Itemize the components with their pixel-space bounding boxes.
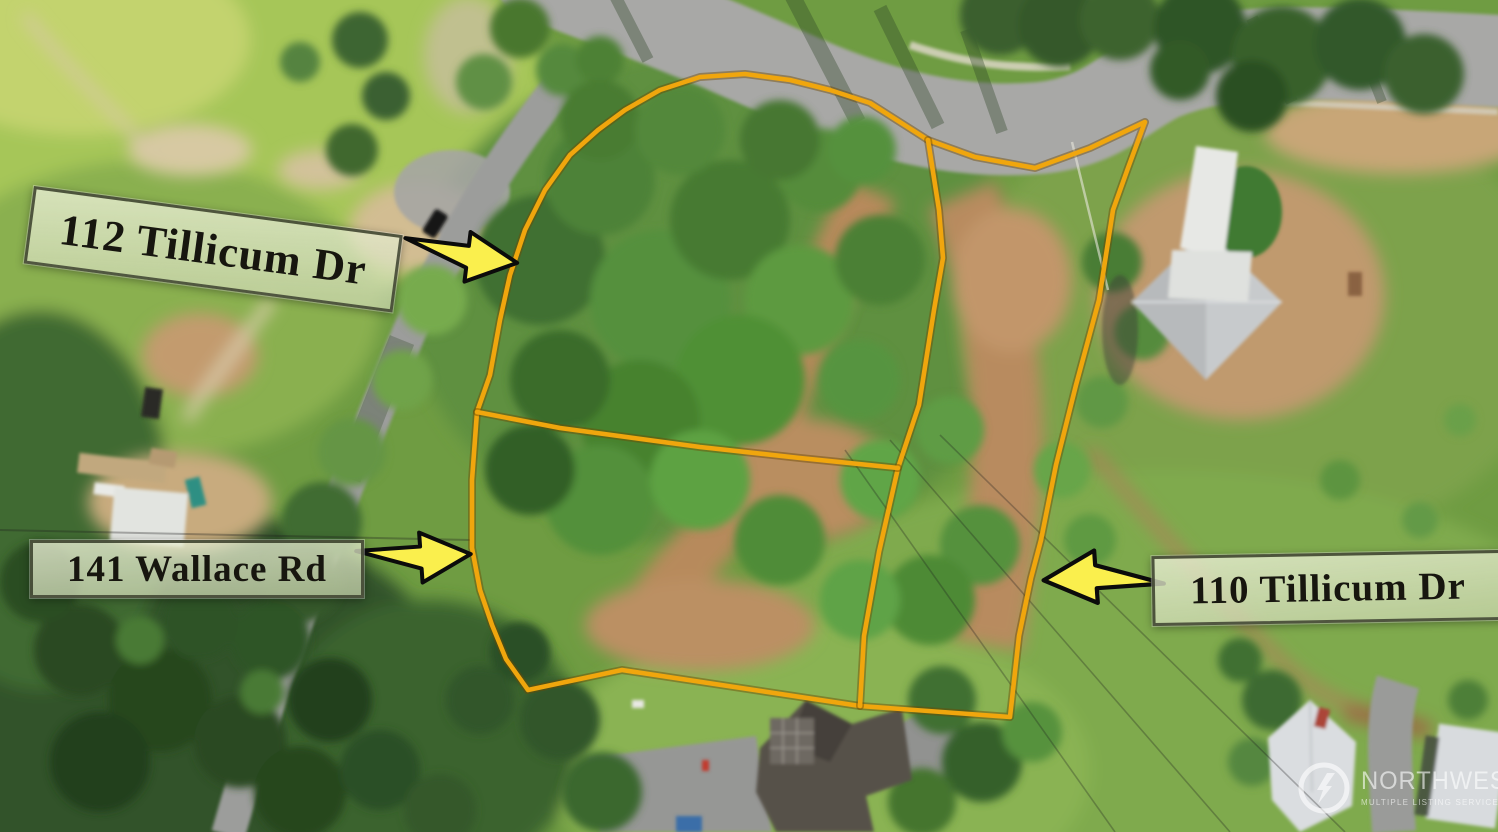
address-callout-110-tillicum-dr: 110 Tillicum Dr bbox=[1151, 550, 1498, 626]
address-callout-110-label: 110 Tillicum Dr bbox=[1190, 563, 1467, 613]
parcel-divider-north-south bbox=[860, 140, 943, 706]
aerial-property-photo: 112 Tillicum Dr 141 Wallace Rd 110 Tilli… bbox=[0, 0, 1498, 832]
arrow-110-tillicum-dr bbox=[1042, 546, 1165, 607]
parcel-annotation-layer bbox=[0, 0, 1498, 832]
parcel-outline-shadow bbox=[472, 74, 1145, 717]
arrow-112-tillicum-dr bbox=[401, 224, 520, 288]
parcel-outline bbox=[472, 74, 1145, 717]
arrow-141-wallace-rd bbox=[355, 529, 472, 587]
parcel-divider-north-south-shadow bbox=[860, 140, 943, 706]
address-callout-141-label: 141 Wallace Rd bbox=[67, 548, 327, 591]
address-callout-141-wallace-rd: 141 Wallace Rd bbox=[30, 540, 364, 598]
